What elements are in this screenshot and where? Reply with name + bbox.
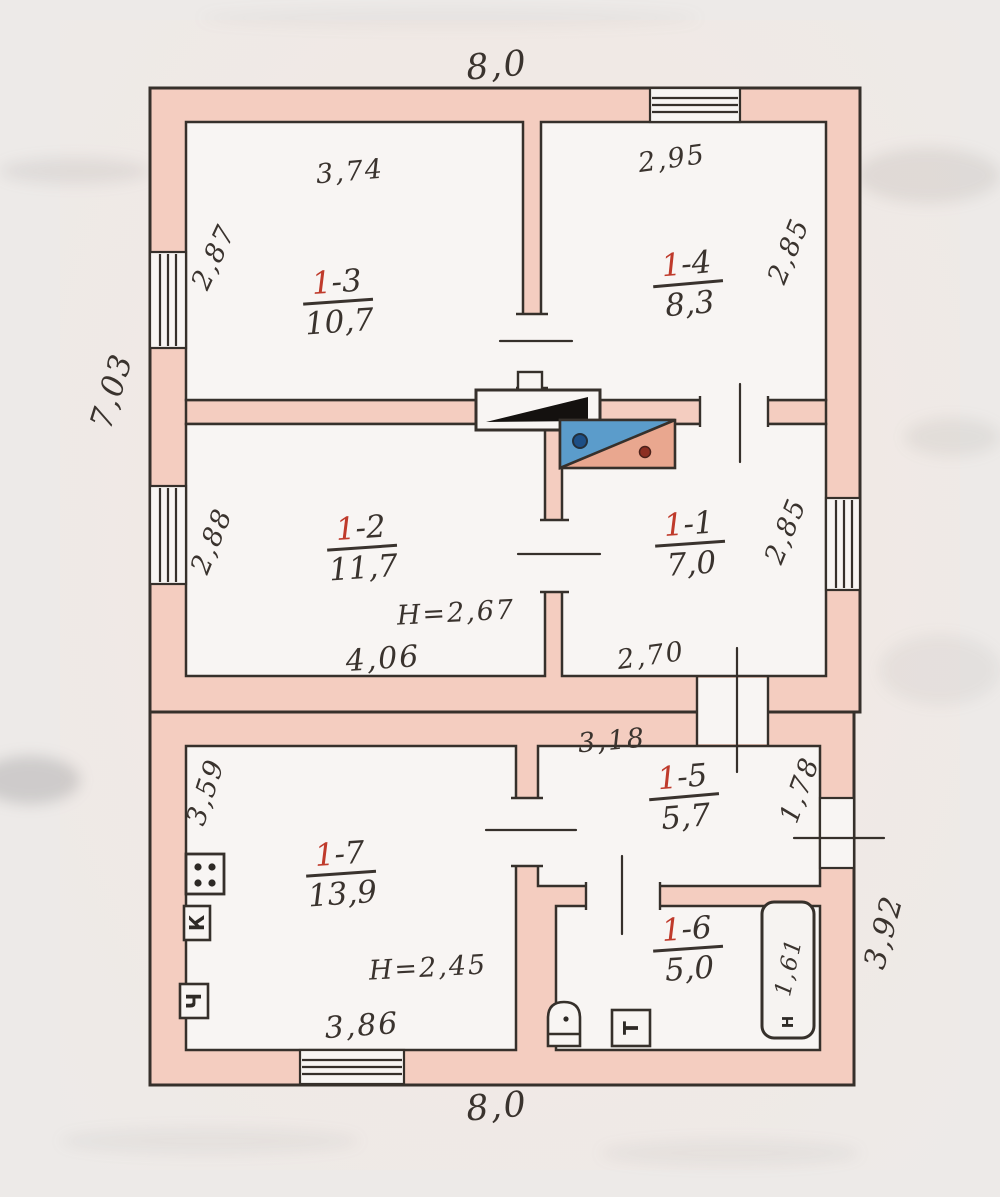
room-label-1-2: 1-2 11,7	[325, 508, 400, 586]
height-note-upper: H=2,67	[396, 594, 516, 631]
floor-plan-scan: 8,0 8,0 7,03 3,92 3,74 2,95 2,87 2,85 2,…	[0, 0, 1000, 1197]
door-upper-to-lower	[697, 676, 768, 746]
bathtub-tap-letter: Н	[779, 1016, 797, 1029]
titan-letter: Т	[619, 1021, 643, 1035]
window-bottom	[300, 1050, 404, 1084]
door-1-7-to-1-5	[511, 798, 543, 866]
dim-room12-width: 4,06	[344, 639, 421, 679]
room-interiors	[186, 122, 826, 1050]
toilet-icon	[548, 1002, 580, 1046]
che-letter: Ч	[182, 993, 206, 1009]
gas-stove-symbol	[560, 420, 675, 468]
room-label-1-4: 1-4 8,3	[650, 243, 726, 322]
window-right-lower	[820, 798, 854, 868]
window-top-right	[650, 88, 740, 122]
dim-room13-width: 3,74	[315, 154, 386, 191]
boiler-letter: К	[185, 915, 209, 931]
room-label-1-6: 1-6 5,0	[651, 909, 726, 987]
room-label-1-1: 1-1 7,0	[653, 504, 728, 582]
dim-room17-width: 3,86	[323, 1006, 400, 1046]
room-label-1-5: 1-5 5,7	[646, 756, 722, 835]
door-1-4-to-1-1	[700, 396, 768, 427]
window-left-upper	[150, 252, 186, 348]
room-label-1-3: 1-3 10,7	[301, 262, 376, 340]
window-left-lower	[150, 486, 186, 584]
dim-bottom-width: 8,0	[465, 1084, 530, 1129]
dim-room15-width: 3,18	[577, 723, 648, 760]
kitchen-stove-icon	[186, 854, 224, 894]
height-note-lower: H=2,45	[368, 949, 488, 986]
room-label-1-7: 1-7 13,9	[304, 834, 379, 912]
door-1-2-to-1-1	[540, 520, 569, 592]
dim-top-width: 8,0	[465, 43, 530, 88]
window-right-upper	[826, 498, 860, 590]
